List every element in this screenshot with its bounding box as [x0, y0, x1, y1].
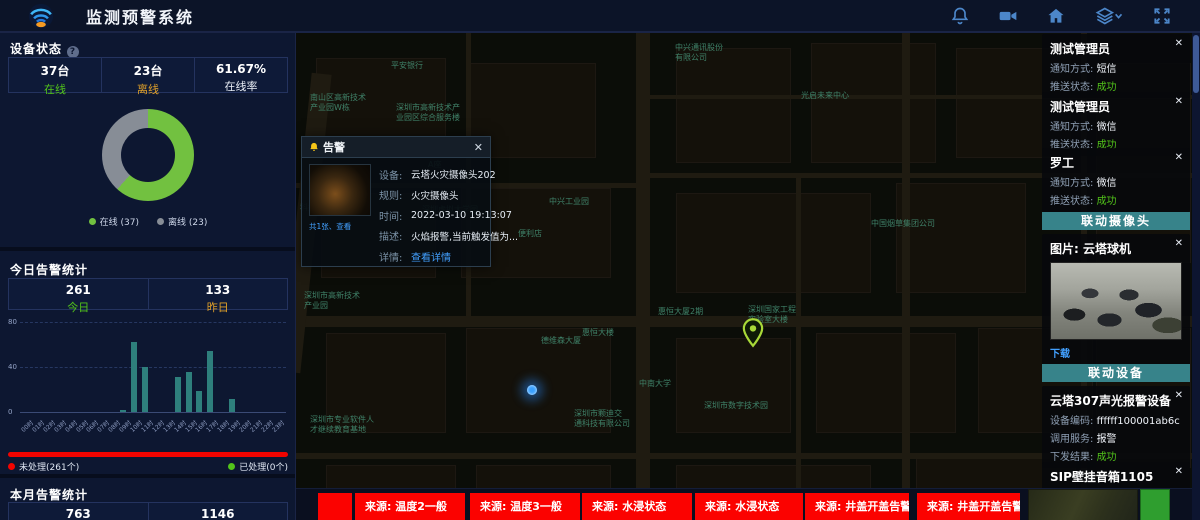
ticker-green-thumbnail[interactable]: [1140, 489, 1170, 520]
card-row-value: 微信: [1097, 178, 1117, 189]
alert-popup-rows: 设备:云塔火灾摄像头202规则:火灾摄像头时间:2022-03-10 19:13…: [371, 164, 518, 267]
card-row-label: 推送状态:: [1050, 196, 1097, 207]
app-root: 监测预警系统 设备状态?: [0, 0, 1200, 520]
map-label: 惠恒大楼: [582, 328, 614, 338]
y-axis-tick: 0: [8, 408, 12, 416]
map-label: 惠恒大厦2期: [658, 307, 703, 317]
card-row-value: ffffff100001ab6c: [1097, 416, 1180, 427]
close-icon[interactable]: ✕: [1175, 238, 1183, 249]
ticker-alert-item[interactable]: 来源: 井盖开盖告警: [805, 493, 909, 520]
bell-icon[interactable]: [950, 5, 972, 27]
map-label: 深圳市颗迪交 通科技有限公司: [574, 409, 630, 428]
card-row-value: 成功: [1097, 196, 1117, 207]
camera-card: ✕图片: 云塔球机下载: [1042, 234, 1190, 366]
alert-detail-label: 时间:: [379, 208, 411, 223]
y-axis-tick: 80: [8, 318, 17, 326]
right-scrollbar-thumb[interactable]: [1193, 35, 1199, 93]
card-row-label: 设备编码:: [1050, 416, 1097, 427]
left-panel: 设备状态? 37台 在线 23台 离线 61.67% 在线率 在线 (37): [0, 33, 296, 520]
app-logo-icon: [28, 3, 54, 29]
close-icon[interactable]: ✕: [1175, 466, 1183, 477]
stat-month-a: 763: [9, 503, 149, 520]
legend-handled: 已处理(0个): [228, 460, 288, 473]
month-alerts-title: 本月告警统计: [10, 486, 88, 503]
alert-detail-row: 描述:火焰报警,当前触发值为...: [379, 226, 518, 247]
bar-19时[interactable]: [229, 399, 235, 413]
linked-cameras-header[interactable]: 联动摄像头: [1042, 212, 1190, 230]
alert-detail-label: 详情:: [379, 249, 411, 264]
stat-online: 37台 在线: [9, 58, 102, 92]
map-label: 中国烟草集团公司: [871, 219, 935, 229]
bar-14时[interactable]: [175, 377, 181, 412]
hourly-alert-bar-chart: 0408000时01时02时03时04时05时06时07时08时09时10时11…: [8, 318, 290, 450]
alert-detail-row: 规则:火灾摄像头: [379, 185, 518, 206]
notification-card: ✕罗工通知方式: 微信推送状态: 成功: [1042, 148, 1190, 212]
alert-popup-title: 告警: [323, 139, 474, 155]
card-row: 推送状态: 成功: [1050, 78, 1182, 93]
alert-snapshot-image[interactable]: [309, 164, 371, 216]
bar-15时[interactable]: [186, 372, 192, 413]
device-marker-blue-dot[interactable]: [527, 385, 537, 395]
alert-detail-value: 火灾摄像头: [411, 188, 459, 202]
today-alerts-stats: 261 今日 133 昨日: [8, 278, 288, 310]
progress-legend: 未处理(261个) 已处理(0个): [8, 460, 288, 473]
right-scrollbar-track[interactable]: [1192, 33, 1200, 520]
card-row-label: 通知方式:: [1050, 178, 1097, 189]
bar-16时[interactable]: [196, 391, 202, 412]
bar-17时[interactable]: [207, 351, 213, 412]
alert-popup: 告警 ✕ 共1张、查看 设备:云塔火灾摄像头202规则:火灾摄像头时间:2022…: [301, 136, 491, 267]
stat-today: 261 今日: [9, 279, 149, 309]
bar-09时[interactable]: [120, 410, 126, 412]
layers-icon[interactable]: [1094, 5, 1126, 27]
alert-detail-row: 设备:云塔火灾摄像头202: [379, 164, 518, 185]
card-row: 通知方式: 微信: [1050, 118, 1182, 133]
notification-title: 罗工: [1050, 154, 1182, 171]
alert-ticker-bar: 来源: 温度2一般来源: 温度3一般来源: 水浸状态来源: 水浸状态来源: 井盖…: [296, 488, 1200, 520]
ticker-photo-thumbnail[interactable]: [1028, 489, 1138, 520]
notification-card: ✕测试管理员通知方式: 短信推送状态: 成功: [1042, 34, 1190, 98]
ticker-alert-item[interactable]: 来源: 水浸状态: [582, 493, 692, 520]
alert-detail-value: 火焰报警,当前触发值为...: [411, 229, 518, 243]
card-row: 通知方式: 短信: [1050, 60, 1182, 75]
alert-detail-row: 详情:查看详情: [379, 246, 518, 267]
ticker-alert-item[interactable]: 来源: 温度3一般: [470, 493, 580, 520]
home-icon[interactable]: [1046, 5, 1068, 27]
today-alerts-title: 今日告警统计: [10, 261, 88, 278]
device-status-title: 设备状态?: [10, 40, 79, 58]
stat-month-b: 1146: [149, 503, 288, 520]
map-label: 深圳市数字技术园: [704, 401, 768, 411]
grid-line-80: [20, 322, 286, 323]
download-link[interactable]: 下载: [1050, 345, 1070, 360]
device-card-title: 云塔307声光报警设备: [1050, 392, 1182, 409]
alert-snapshot-caption[interactable]: 共1张、查看: [309, 221, 371, 232]
alert-detail-label: 设备:: [379, 167, 411, 182]
map-label: 深圳市专业软件人 才继续教育基地: [310, 415, 374, 434]
ticker-alert-item[interactable]: 来源: 水浸状态: [695, 493, 803, 520]
linked-devices-header[interactable]: 联动设备: [1042, 364, 1190, 382]
device-card-title: SIP壁挂音箱1105: [1050, 468, 1182, 485]
alarm-bell-icon: [309, 142, 319, 152]
card-row: 推送状态: 成功: [1050, 192, 1182, 207]
top-header: 监测预警系统: [0, 0, 1200, 33]
alert-popup-header: 告警 ✕: [302, 137, 490, 158]
card-row: 下发结果: 成功: [1050, 448, 1182, 463]
alert-detail-value: 云塔火灾摄像头202: [411, 167, 496, 181]
map-label: 深圳市高新技术产 业园区综合服务楼: [396, 103, 460, 122]
map-label: 光启未来中心: [801, 91, 849, 101]
card-row: 设备编码: ffffff100001ab6c: [1050, 412, 1182, 427]
map-label: 中兴工业园: [549, 197, 589, 207]
card-row-value: 短信: [1097, 64, 1117, 75]
page-title: 监测预警系统: [86, 4, 194, 28]
bar-11时[interactable]: [142, 367, 148, 412]
ticker-alert-item[interactable]: [318, 493, 352, 520]
location-pin-icon[interactable]: [742, 318, 764, 348]
legend-unhandled: 未处理(261个): [8, 460, 79, 473]
card-row-label: 通知方式:: [1050, 64, 1097, 75]
alert-detail-label: 规则:: [379, 187, 411, 202]
stat-offline: 23台 离线: [102, 58, 195, 92]
notification-title: 测试管理员: [1050, 40, 1182, 57]
stat-yesterday: 133 昨日: [149, 279, 288, 309]
video-camera-icon[interactable]: [998, 5, 1020, 27]
card-row-label: 通知方式:: [1050, 122, 1097, 133]
device-status-stats: 37台 在线 23台 离线 61.67% 在线率: [8, 57, 288, 93]
card-row-label: 调用服务:: [1050, 434, 1097, 445]
month-alerts-stats: 763 1146: [8, 502, 288, 520]
ticker-alert-item[interactable]: 来源: 井盖开盖告警: [917, 493, 1020, 520]
notification-card: ✕测试管理员通知方式: 微信推送状态: 成功: [1042, 92, 1190, 156]
map-label: 便利店: [518, 229, 542, 239]
donut-legend: 在线 (37) 离线 (23): [0, 215, 296, 228]
ticker-alert-item[interactable]: 来源: 温度2一般: [355, 493, 465, 520]
grid-line-40: [20, 367, 286, 368]
close-icon[interactable]: ✕: [1175, 38, 1183, 49]
device-card: ✕云塔307声光报警设备设备编码: ffffff100001ab6c调用服务: …: [1042, 386, 1190, 468]
map-label: 平安银行: [391, 61, 423, 71]
map-label: 深圳市高新技术 产业园: [304, 291, 360, 310]
bar-10时[interactable]: [131, 342, 137, 412]
grid-line-0: [20, 412, 286, 413]
card-row: 通知方式: 微信: [1050, 174, 1182, 189]
map-label: 南山区高新技术 产业园W栋: [310, 93, 366, 112]
right-panel: ✕测试管理员通知方式: 短信推送状态: 成功✕测试管理员通知方式: 微信推送状态…: [1042, 33, 1190, 520]
close-icon[interactable]: ✕: [1175, 390, 1183, 401]
legend-online: 在线 (37): [89, 215, 139, 228]
map-label: 德维森大厦: [541, 336, 581, 346]
alert-detail-row: 时间:2022-03-10 19:13:07: [379, 205, 518, 226]
map-label: 中兴通讯股份 有限公司: [675, 43, 723, 62]
y-axis-tick: 40: [8, 363, 17, 371]
card-row: 调用服务: 报警: [1050, 430, 1182, 445]
close-icon[interactable]: ✕: [1175, 96, 1183, 107]
close-icon[interactable]: ✕: [1175, 152, 1183, 163]
legend-offline: 离线 (23): [157, 215, 207, 228]
unhandled-progress-bar: [8, 452, 288, 457]
close-icon[interactable]: ✕: [474, 141, 483, 154]
stat-online-rate: 61.67% 在线率: [195, 58, 287, 92]
camera-snapshot-image[interactable]: [1050, 262, 1182, 340]
alert-detail-value: 2022-03-10 19:13:07: [411, 210, 512, 221]
alert-detail-label: 描述:: [379, 228, 411, 243]
fullscreen-icon[interactable]: [1152, 5, 1174, 27]
card-row-value: 报警: [1097, 434, 1117, 445]
notification-title: 测试管理员: [1050, 98, 1182, 115]
map-label: 中南大学: [639, 379, 671, 389]
card-row-value: 微信: [1097, 122, 1117, 133]
view-details-link[interactable]: 查看详情: [411, 249, 451, 264]
device-status-donut-chart: [102, 109, 194, 201]
alert-popup-body: 共1张、查看 设备:云塔火灾摄像头202规则:火灾摄像头时间:2022-03-1…: [302, 158, 490, 273]
camera-card-title: 图片: 云塔球机: [1050, 240, 1182, 257]
